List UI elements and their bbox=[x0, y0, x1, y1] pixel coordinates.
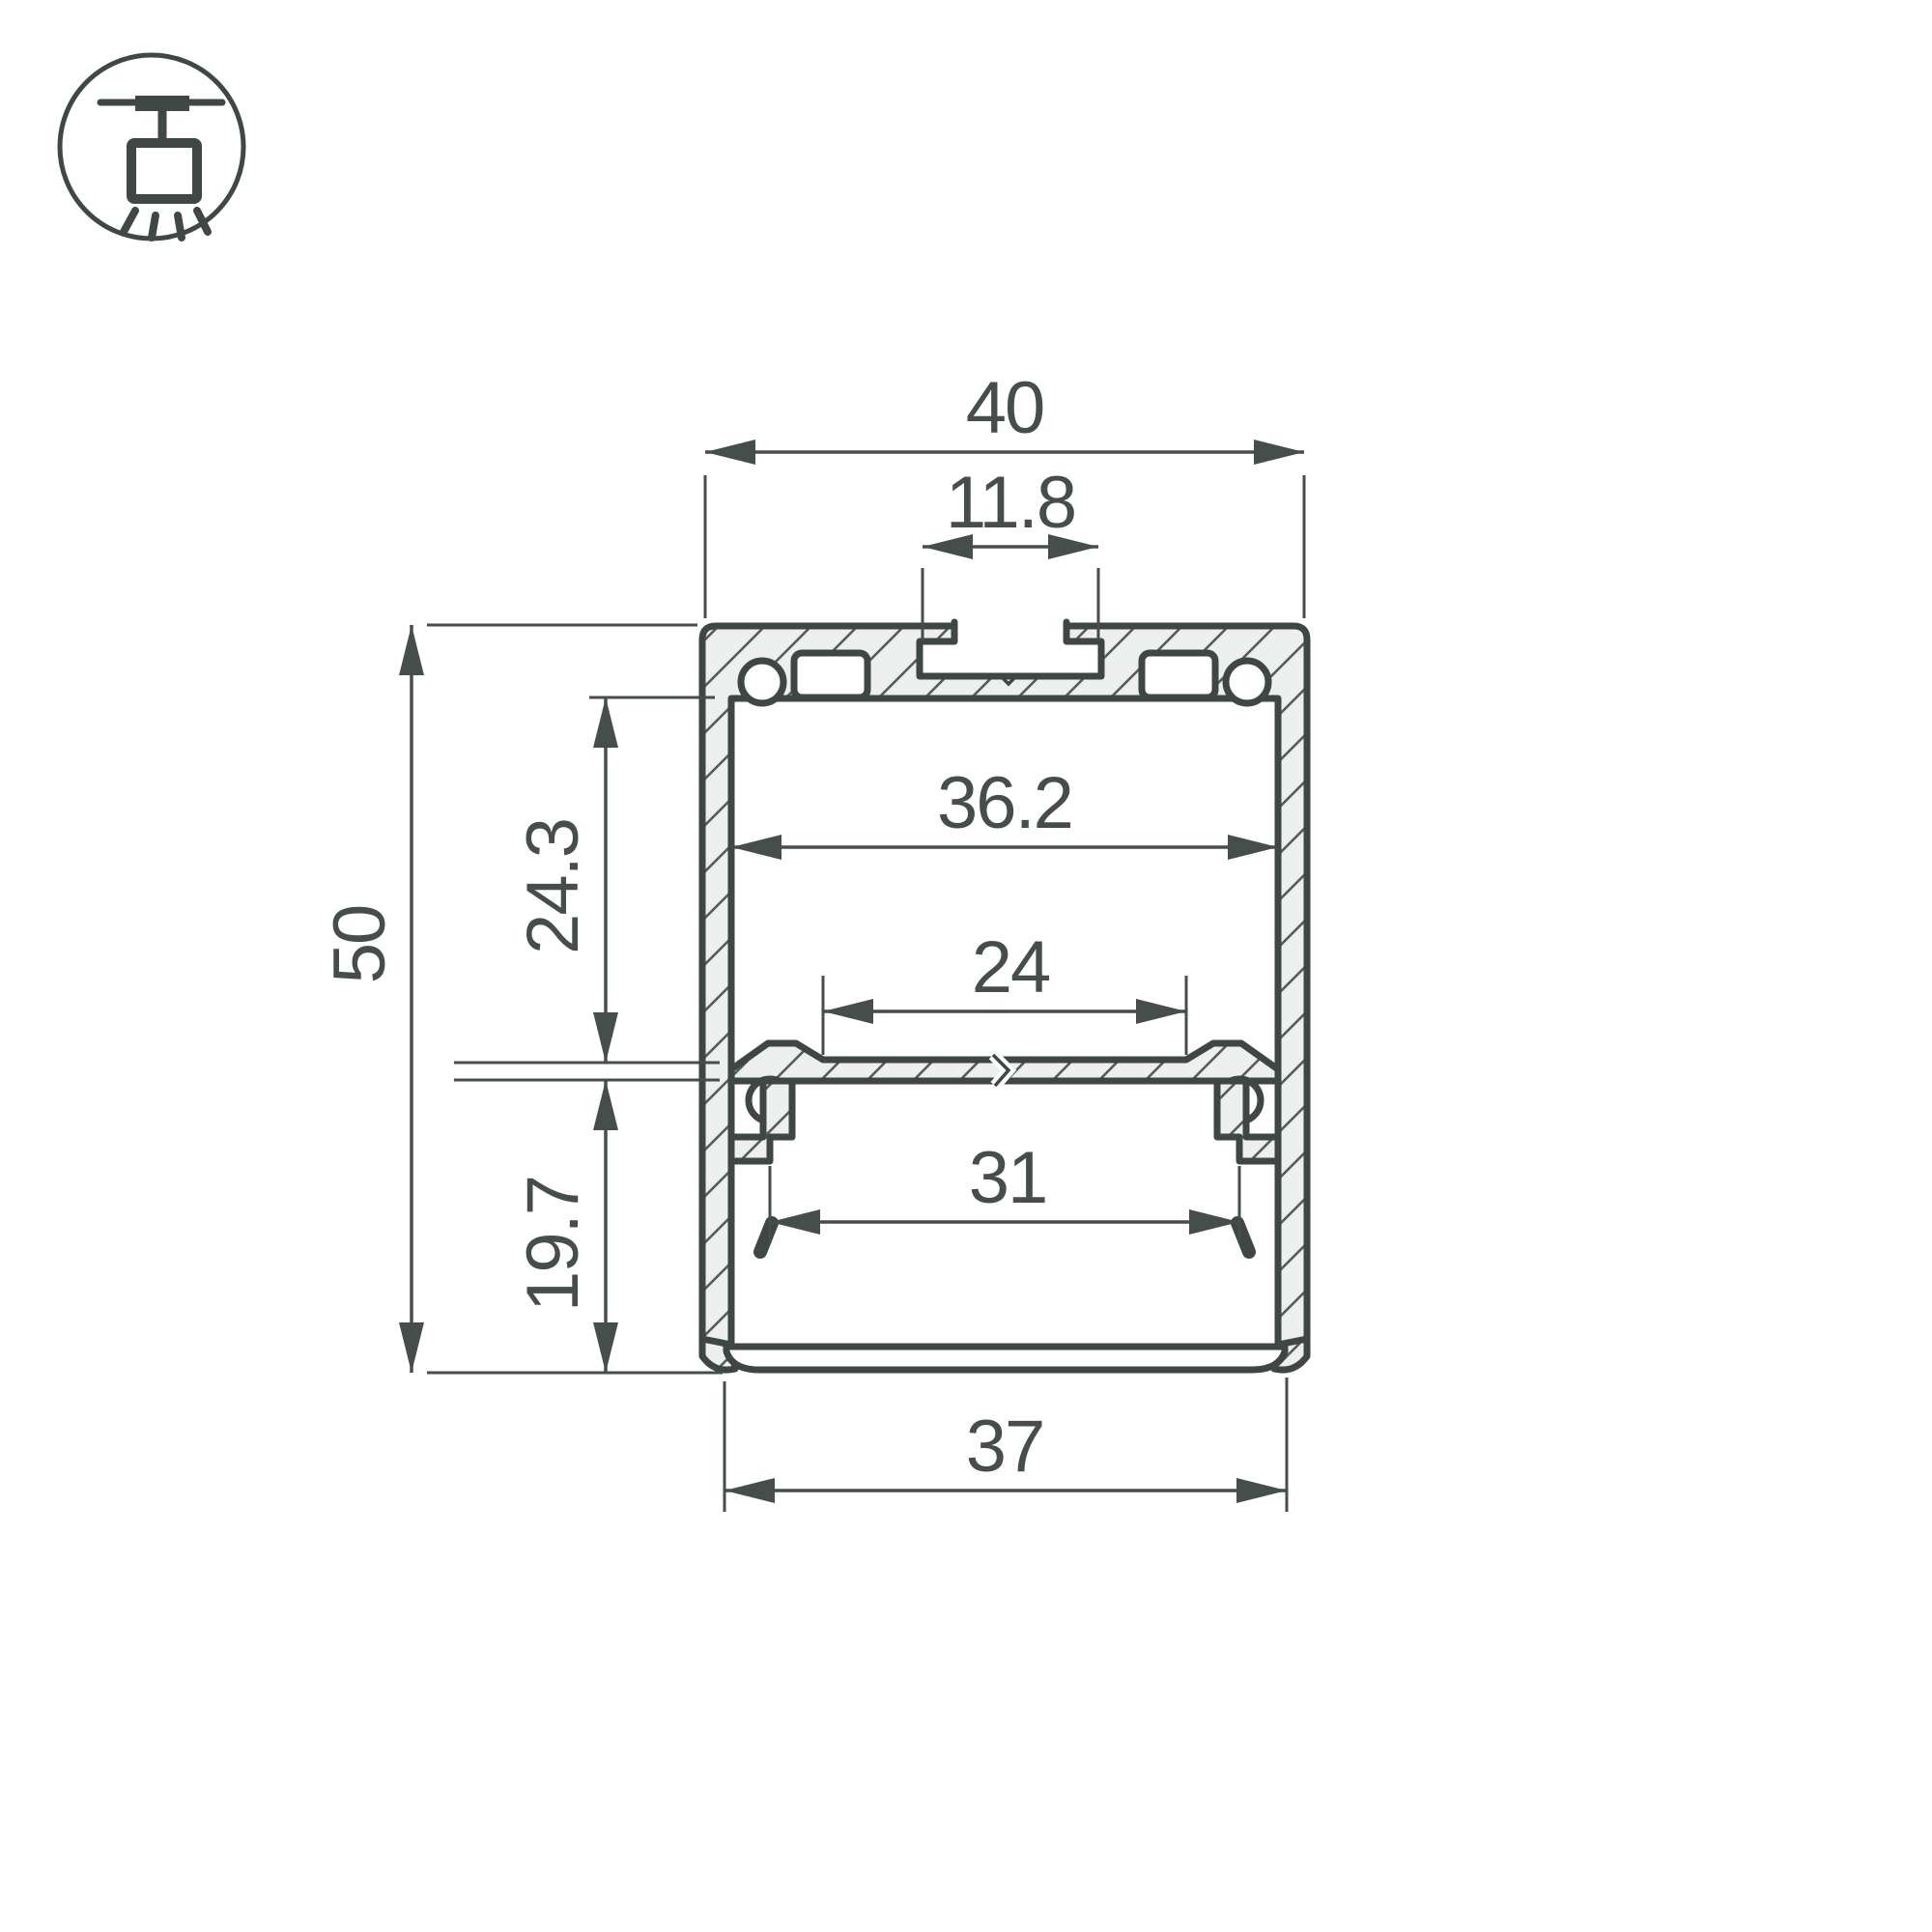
dim-mid-recess-width-label: 24 bbox=[972, 926, 1050, 1009]
dim-lower-cavity-height: 19.7 bbox=[512, 1080, 618, 1373]
dim-mid-recess-width: 24 bbox=[823, 926, 1186, 1055]
dim-overall-height-label: 50 bbox=[319, 906, 401, 984]
dim-lower-cavity-height-label: 19.7 bbox=[512, 1177, 594, 1312]
side-slot-left bbox=[794, 653, 867, 697]
screw-boss-top-right bbox=[1226, 661, 1268, 703]
dim-inner-width-label: 36.2 bbox=[937, 762, 1072, 844]
icon-light-rays bbox=[124, 211, 208, 238]
dim-upper-cavity-height-label: 24.3 bbox=[512, 819, 594, 954]
shelf-leg-foot-right bbox=[1217, 1081, 1278, 1161]
drawing-canvas: 40 11.8 36.2 24 31 bbox=[0, 0, 1932, 1932]
dim-led-seat-width-label: 31 bbox=[969, 1137, 1047, 1219]
shelf-leg-foot-left bbox=[731, 1081, 792, 1161]
dim-upper-cavity-height: 24.3 bbox=[454, 697, 720, 1080]
dim-diffuser-width: 37 bbox=[724, 1378, 1287, 1512]
dim-overall-width-label: 40 bbox=[966, 367, 1044, 449]
side-slot-right bbox=[1142, 653, 1215, 697]
icon-lamp-body bbox=[131, 143, 197, 199]
dim-top-slot-width-label: 11.8 bbox=[946, 462, 1075, 544]
dim-led-seat-width: 31 bbox=[770, 1137, 1239, 1243]
screw-boss-top-left bbox=[741, 661, 783, 703]
drawing-page: 40 11.8 36.2 24 31 bbox=[0, 0, 1932, 1932]
dim-top-slot-width: 11.8 bbox=[923, 462, 1098, 640]
diffuser-cover bbox=[726, 1347, 1285, 1370]
ceiling-pendant-icon bbox=[60, 55, 243, 239]
dim-inner-width: 36.2 bbox=[731, 762, 1278, 860]
dim-diffuser-width-label: 37 bbox=[966, 1406, 1044, 1488]
